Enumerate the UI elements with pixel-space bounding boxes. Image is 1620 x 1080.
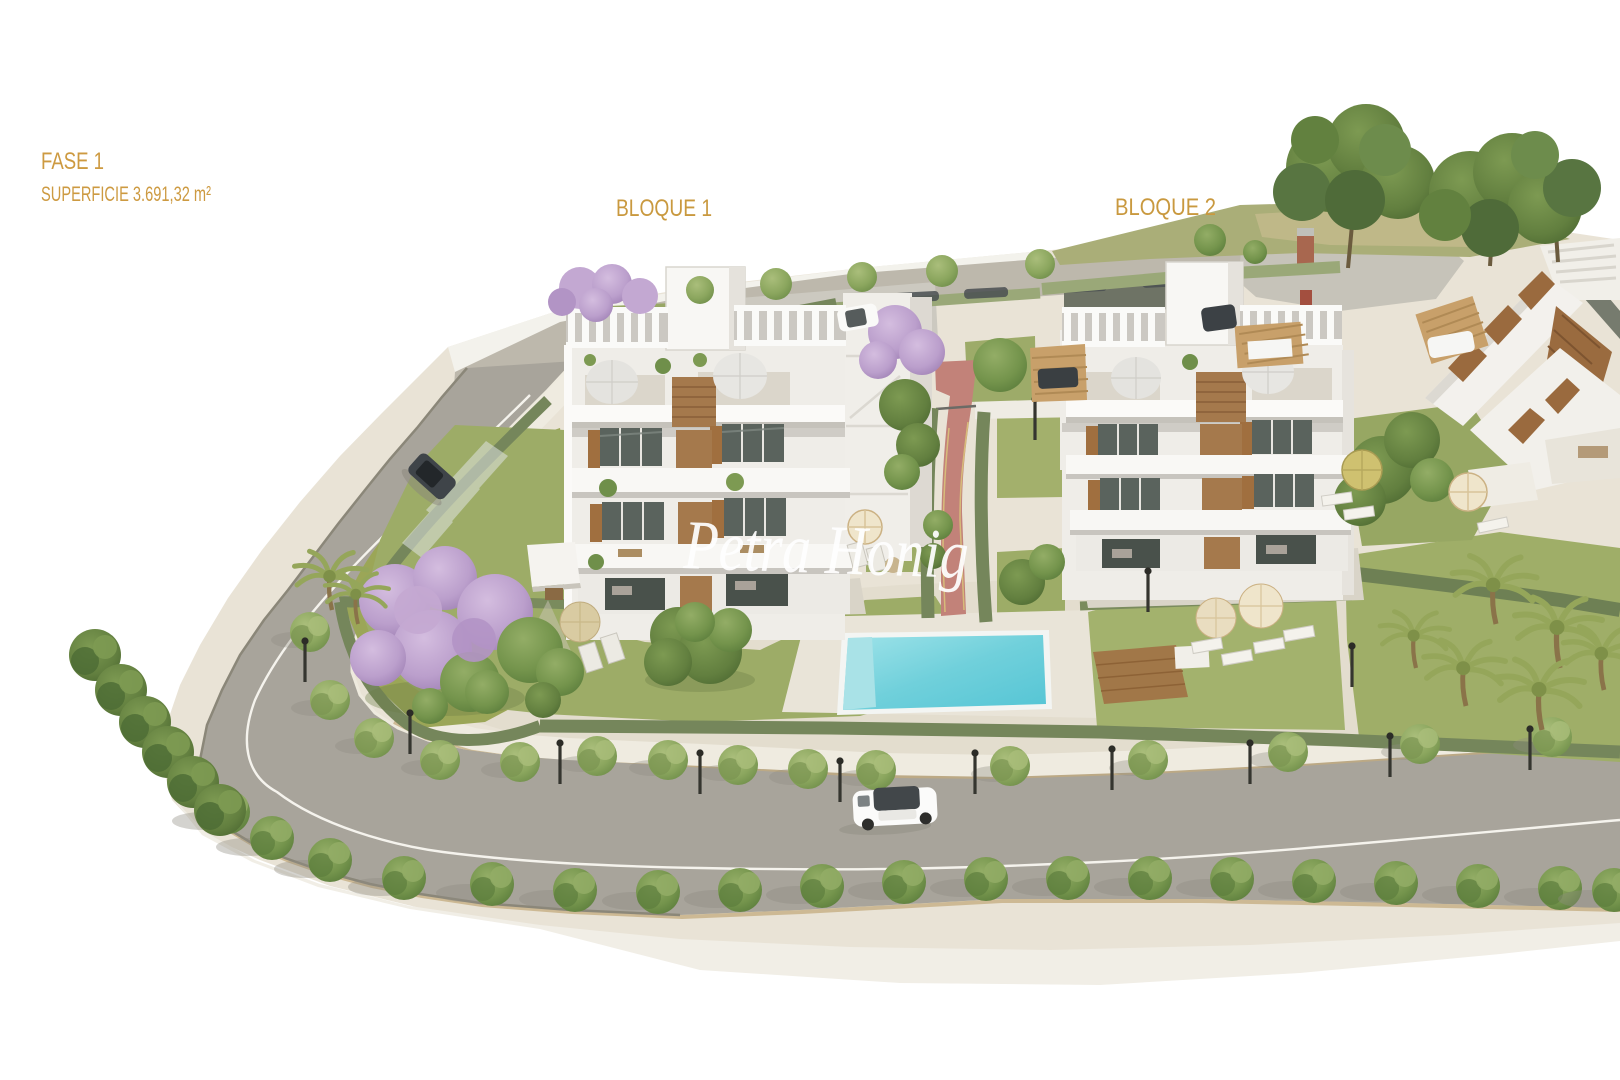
- svg-text:BLOQUE 2: BLOQUE 2: [1115, 194, 1216, 221]
- svg-text:BLOQUE 1: BLOQUE 1: [616, 195, 712, 222]
- svg-text:FASE 1: FASE 1: [41, 148, 104, 175]
- svg-text:Petra Honig: Petra Honig: [682, 507, 970, 594]
- svg-text:SUPERFICIE 3.691,32 m²: SUPERFICIE 3.691,32 m²: [41, 183, 211, 206]
